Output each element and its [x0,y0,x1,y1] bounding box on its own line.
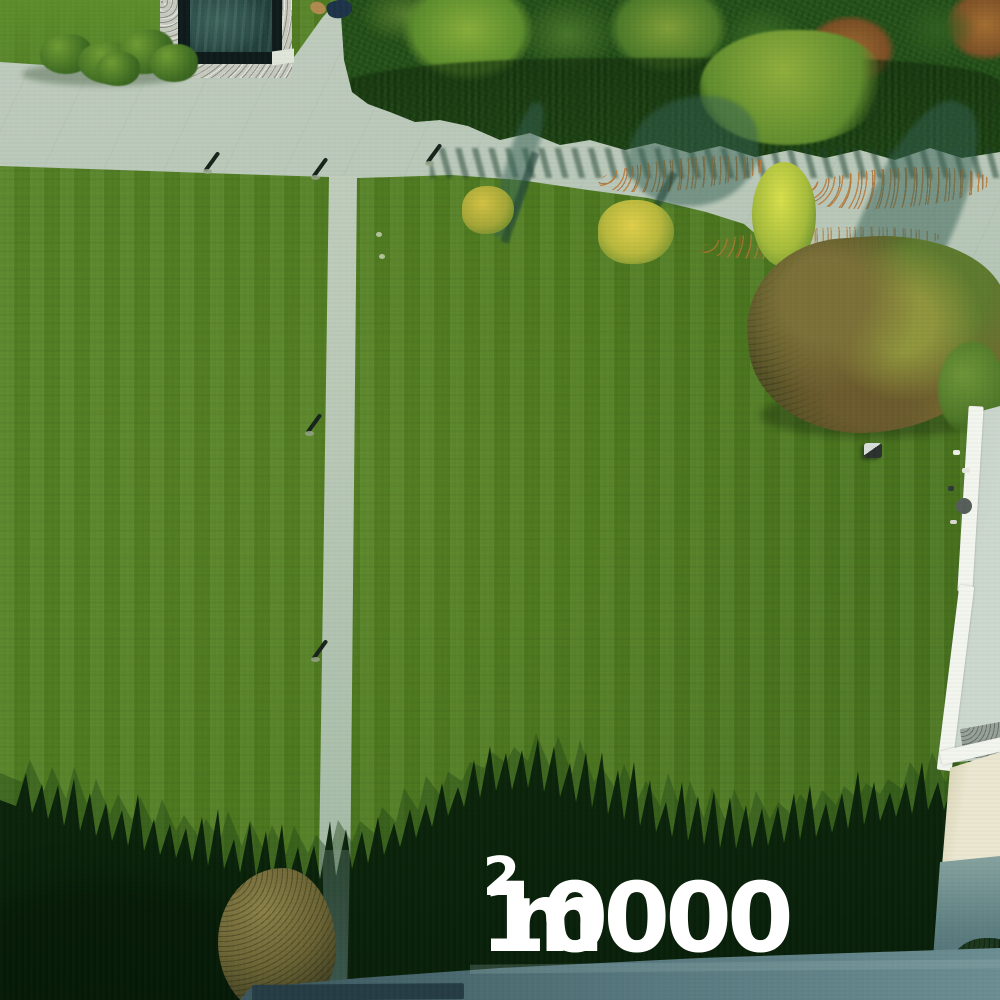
terrace-furniture [950,520,957,524]
stake-base [311,657,320,662]
shrub-blob [96,52,140,86]
aerial-photo-scene: 10000m2 [0,0,1000,1000]
stake-base [203,169,212,174]
area-exponent: 2 [483,845,520,908]
robot-mower [864,443,882,458]
stake-base [305,431,314,436]
terrace-umbrella [956,498,972,514]
lawn-marker-dot [379,254,385,259]
area-label: 10000m2 [480,870,520,966]
bottom-path-step [252,983,464,1000]
terrace-furniture [948,486,954,491]
stake-base [425,161,434,166]
lawn-marker-dot [376,232,382,237]
pool-water [190,0,272,52]
terrace-furniture [962,468,970,473]
shrub-blob [150,44,198,82]
terrace-furniture [953,450,960,455]
stake-base [311,175,320,180]
